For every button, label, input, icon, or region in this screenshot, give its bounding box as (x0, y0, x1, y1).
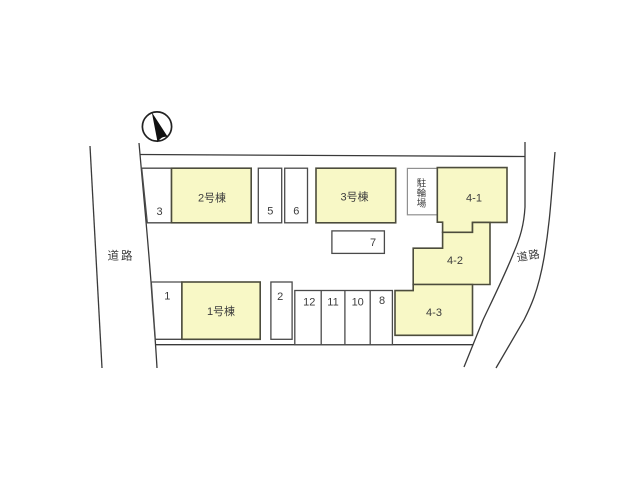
svg-text:3号棟: 3号棟 (340, 190, 368, 204)
svg-text:場: 場 (417, 198, 427, 210)
svg-text:2: 2 (277, 291, 283, 303)
svg-text:1号棟: 1号棟 (207, 304, 235, 318)
svg-text:12: 12 (303, 297, 315, 309)
svg-text:6: 6 (293, 206, 299, 218)
svg-text:5: 5 (267, 206, 273, 218)
svg-text:道路: 道路 (108, 249, 135, 263)
svg-text:3: 3 (156, 206, 162, 218)
svg-text:11: 11 (327, 297, 338, 309)
svg-text:4-3: 4-3 (426, 307, 442, 319)
svg-text:2号棟: 2号棟 (198, 191, 226, 205)
svg-text:4-2: 4-2 (447, 255, 463, 267)
svg-text:8: 8 (379, 295, 385, 307)
svg-text:1: 1 (164, 291, 170, 303)
svg-text:10: 10 (352, 297, 364, 309)
svg-text:7: 7 (370, 237, 376, 249)
svg-text:4-1: 4-1 (466, 193, 482, 205)
